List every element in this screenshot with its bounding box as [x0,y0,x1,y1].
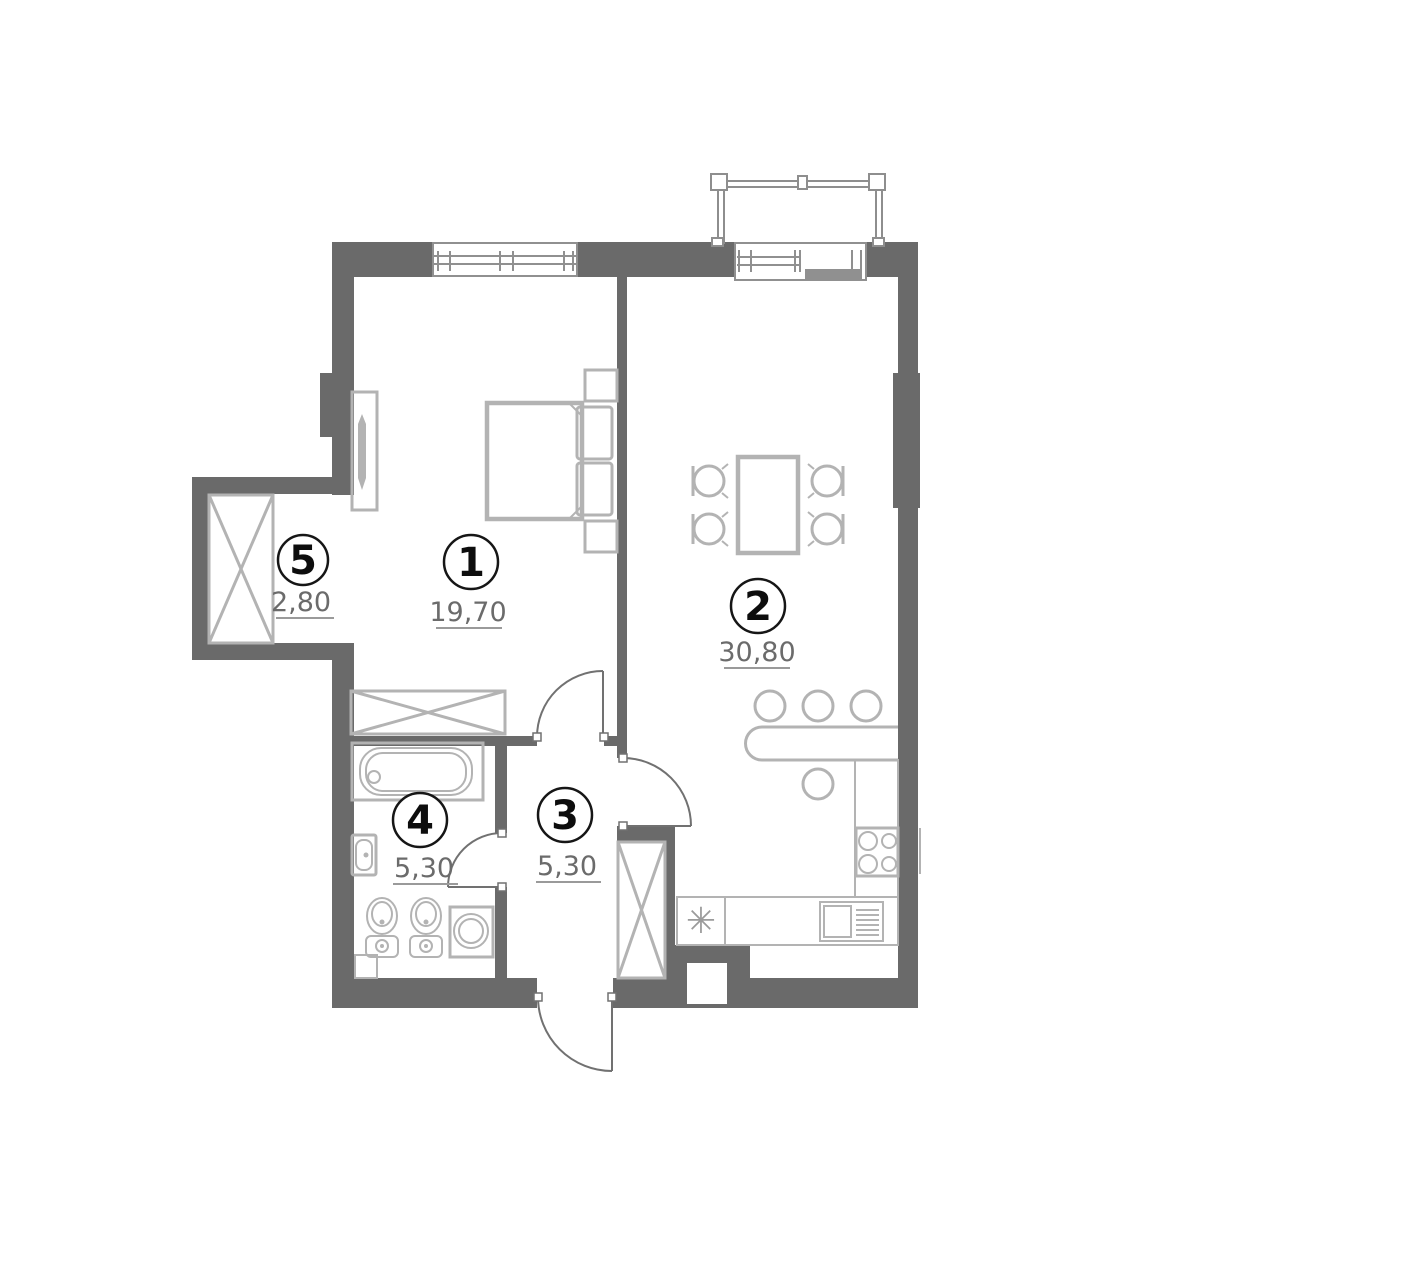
floor-plan-canvas: ✳ [0,0,1418,1261]
bathtub [352,743,483,800]
partition-bath-east-lower [495,887,507,978]
wardrobe-hall [618,842,665,978]
door-room2 [619,754,691,830]
door-hinge [498,829,506,837]
door-hinge [600,733,608,741]
window-opening [433,243,577,276]
window-balcony-door-room2 [735,243,866,280]
railing-inner [724,187,876,244]
stove [856,828,898,876]
door-hinge [534,993,542,1001]
room2-furniture: ✳ [677,457,920,945]
dishwasher [820,902,883,941]
door-hinge [608,993,616,1001]
room5-label: 5 2,80 [271,535,334,618]
dining-chair [808,464,843,498]
room-5-number: 5 [289,538,317,584]
room3-label: 3 5,30 [536,788,601,882]
room-1-number: 1 [457,540,485,586]
room2-label: 2 30,80 [718,579,795,668]
room5-furniture [209,495,273,643]
bathroom-cabinet [355,955,377,978]
door-swing-arc [623,758,691,826]
balcony-door-threshold [805,269,862,280]
room-4-area: 5,30 [394,853,454,884]
railing-post [798,176,807,189]
room-1-area: 19,70 [429,597,506,628]
balcony5-wall-left [192,477,209,660]
wall-pilaster [320,373,333,437]
door-swing-arc [538,997,612,1071]
room-2-number: 2 [744,584,772,630]
railing-post [711,174,727,190]
door-swing-arc [537,671,603,737]
balcony-railing [711,174,885,246]
dining-chair [693,512,728,546]
bathroom-sink [352,835,376,875]
loggia-glazing [209,495,273,643]
room-5-area: 2,80 [271,587,331,618]
bidet [410,898,442,957]
partition-bath-east-upper [495,746,507,833]
bed [487,403,582,519]
railing-post [869,174,885,190]
toilet [366,898,398,957]
bar-stool [803,691,833,721]
nightstand [585,370,617,401]
railing-outer [718,181,882,244]
dining-chair [808,512,843,546]
door-hinge [498,883,506,891]
door-hinge [533,733,541,741]
room-4-number: 4 [406,798,434,844]
balcony5-wall-top [192,477,332,494]
bar-stool [851,691,881,721]
floor-plan-drawing: ✳ [0,0,1418,1261]
exterior-walls [192,242,920,1008]
railing-post [873,238,884,246]
railing-post [712,238,723,246]
door-hinge [619,822,627,830]
door-room1 [533,671,608,741]
wardrobe-room1 [351,691,505,734]
room-3-area: 5,30 [537,851,597,882]
tv [358,414,366,490]
partition-room1-room2 [617,277,627,758]
room4-label: 4 5,30 [393,793,458,884]
dining-table [738,457,798,553]
kitchen-counter-bottom: ✳ [677,897,898,945]
door-entrance [534,993,616,1071]
wall-segment [332,978,537,1008]
room1-label: 1 19,70 [429,535,506,628]
dining-chair [693,464,728,498]
room-2-area: 30,80 [718,637,795,668]
door-hinge [619,754,627,762]
window-room1 [433,243,577,276]
door-swing-arc [448,833,502,887]
wall-niche [687,963,727,1004]
wall-segment [613,978,918,1008]
wall-pilaster [893,373,920,508]
bar-stool [755,691,785,721]
wall-segment [577,242,735,277]
nightstand [585,521,617,552]
room3-furniture [618,842,665,978]
washing-machine [450,907,493,957]
room-3-number: 3 [551,793,579,839]
bar-counter [746,727,899,760]
door-bathroom [448,829,506,891]
wall-segment [866,242,918,277]
bar-stool [803,769,833,799]
balcony5-wall-bottom [192,643,332,660]
kitchen-sink-symbol: ✳ [686,901,716,942]
